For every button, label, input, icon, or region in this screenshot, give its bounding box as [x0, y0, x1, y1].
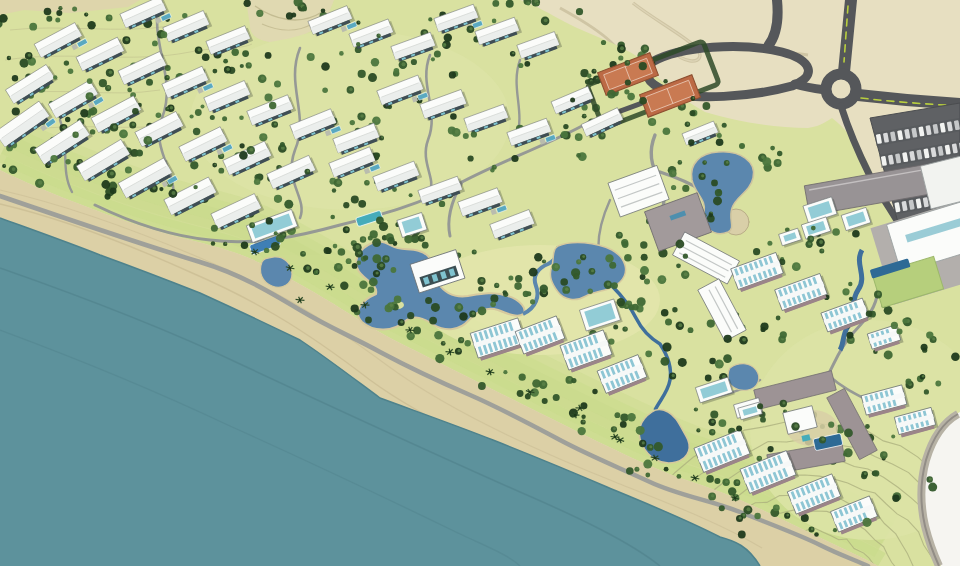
- tree: [529, 268, 538, 277]
- tree: [891, 322, 898, 329]
- tree: [357, 260, 362, 265]
- tree: [190, 161, 198, 169]
- tree: [738, 531, 746, 539]
- tree: [434, 50, 441, 57]
- tree: [55, 18, 60, 23]
- tree: [639, 97, 647, 105]
- tree: [865, 424, 870, 429]
- tree-crown: [409, 334, 413, 338]
- tree-crown: [808, 242, 811, 245]
- tree-crown: [147, 138, 151, 142]
- tree: [232, 49, 239, 56]
- tree: [884, 350, 893, 359]
- tree: [365, 317, 372, 324]
- tree: [624, 89, 629, 94]
- tree-crown: [225, 242, 227, 244]
- tree-crown: [786, 514, 789, 517]
- tree-crown: [584, 115, 586, 117]
- tree: [352, 263, 358, 269]
- tree-crown: [4, 165, 6, 167]
- tree: [627, 413, 635, 421]
- tree: [210, 115, 215, 120]
- tree: [849, 297, 853, 301]
- tree-crown: [542, 382, 546, 386]
- tree-crown: [747, 507, 751, 511]
- tree: [338, 248, 346, 256]
- tree-crown: [620, 46, 624, 50]
- tree: [601, 40, 606, 45]
- tree: [561, 131, 568, 138]
- tree: [369, 278, 378, 287]
- tree: [770, 146, 775, 151]
- tree: [924, 389, 929, 394]
- tree-crown: [607, 282, 611, 286]
- tree-crown: [696, 408, 698, 410]
- tree: [465, 340, 471, 346]
- tree-crown: [679, 323, 683, 327]
- tree: [444, 34, 452, 42]
- tree: [576, 8, 583, 15]
- tree-crown: [79, 160, 82, 163]
- tree: [654, 442, 663, 451]
- tree: [322, 87, 328, 93]
- tree: [195, 109, 202, 116]
- tree-crown: [62, 126, 66, 130]
- tree: [617, 298, 625, 306]
- tree-crown: [362, 237, 365, 240]
- tree: [72, 6, 77, 11]
- tree-crown: [108, 16, 111, 19]
- tree: [709, 213, 713, 217]
- tree: [409, 193, 413, 197]
- tree: [625, 79, 631, 85]
- tree: [68, 68, 74, 74]
- tree-crown: [345, 228, 348, 231]
- tree-crown: [358, 21, 360, 23]
- tree: [490, 295, 498, 303]
- tree-crown: [795, 264, 799, 268]
- tree-crown: [704, 161, 706, 163]
- tree: [492, 19, 497, 24]
- tree: [866, 311, 873, 318]
- tree: [519, 374, 526, 381]
- tree: [146, 79, 153, 86]
- tree-crown: [107, 86, 110, 89]
- tree: [321, 62, 330, 71]
- tree-crown: [88, 94, 92, 98]
- tree-crown: [444, 44, 446, 46]
- tree: [450, 113, 457, 120]
- tree-crown: [132, 93, 135, 96]
- tree: [581, 415, 585, 419]
- tree: [613, 325, 618, 330]
- tree-crown: [810, 237, 813, 240]
- tree-crown: [719, 134, 721, 136]
- tree: [640, 266, 649, 275]
- tree-crown: [360, 114, 364, 118]
- tree-crown: [335, 245, 337, 247]
- tree-crown: [167, 107, 169, 109]
- tree: [862, 518, 871, 527]
- tree-crown: [277, 82, 280, 85]
- tree-crown: [590, 290, 592, 292]
- tree: [683, 254, 688, 259]
- tree: [434, 331, 443, 340]
- tree: [921, 344, 928, 351]
- tree-crown: [127, 168, 130, 171]
- tree: [29, 23, 37, 31]
- tree-crown: [794, 424, 798, 428]
- tree: [211, 241, 215, 245]
- tree: [637, 297, 646, 306]
- tree: [239, 151, 248, 160]
- resort-masterplan-rendering: [0, 0, 960, 566]
- tree: [645, 350, 652, 357]
- tree: [530, 299, 535, 304]
- tree: [471, 131, 477, 137]
- tree: [563, 124, 568, 129]
- tree: [358, 70, 366, 78]
- tree: [753, 248, 760, 255]
- tree: [662, 343, 671, 352]
- tree: [722, 123, 727, 128]
- tree: [431, 303, 440, 312]
- tree-crown: [782, 401, 785, 404]
- tree: [422, 242, 429, 249]
- tree-crown: [565, 288, 569, 292]
- tree: [190, 114, 194, 118]
- tree: [332, 188, 336, 192]
- tree-crown: [618, 233, 621, 236]
- tree: [661, 357, 670, 366]
- tree: [663, 79, 667, 83]
- tree: [202, 54, 210, 62]
- tree: [136, 150, 143, 157]
- tree: [351, 304, 359, 312]
- tree: [703, 102, 711, 110]
- tree: [213, 69, 218, 74]
- tree-crown: [125, 38, 129, 42]
- tree: [425, 297, 432, 304]
- tree-crown: [883, 453, 886, 456]
- tree: [222, 116, 227, 121]
- tree-crown: [711, 430, 714, 433]
- tree-crown: [38, 181, 42, 185]
- tree: [53, 75, 57, 79]
- tree: [761, 327, 766, 332]
- tree-crown: [864, 472, 867, 475]
- tree-crown: [594, 70, 596, 72]
- tree: [394, 296, 402, 304]
- tree-crown: [306, 266, 310, 270]
- tree: [688, 139, 694, 145]
- tree: [201, 105, 205, 109]
- tree-crown: [472, 312, 475, 315]
- tree-crown: [480, 279, 484, 283]
- tree: [368, 286, 375, 293]
- tree-crown: [375, 118, 379, 122]
- tree-crown: [512, 52, 514, 54]
- tree-crown: [739, 516, 742, 519]
- tree: [65, 117, 70, 122]
- tree: [351, 195, 359, 203]
- tree-crown: [742, 338, 746, 342]
- tree: [428, 17, 432, 21]
- tree-crown: [310, 55, 314, 59]
- tree-crown: [227, 68, 230, 71]
- tree-crown: [349, 88, 352, 91]
- tree: [707, 320, 715, 328]
- tree: [407, 312, 414, 319]
- tree-crown: [929, 477, 932, 480]
- tree-crown: [337, 180, 341, 184]
- tree: [372, 254, 381, 263]
- tree-crown: [248, 63, 251, 66]
- tree-crown: [537, 3, 539, 5]
- tree: [161, 31, 168, 38]
- tree: [723, 354, 732, 363]
- tree: [356, 42, 360, 46]
- roundabout-island: [833, 81, 849, 97]
- tree: [56, 10, 62, 16]
- tree: [641, 254, 648, 261]
- tree: [99, 79, 107, 87]
- tree: [728, 487, 736, 495]
- tree-crown: [684, 272, 688, 276]
- tree-crown: [613, 427, 616, 430]
- tree: [639, 62, 647, 70]
- tree-crown: [307, 170, 310, 173]
- tree: [768, 446, 774, 452]
- tree-crown: [578, 135, 582, 139]
- tree: [832, 228, 840, 236]
- tree-crown: [661, 277, 665, 281]
- tree-crown: [167, 76, 169, 78]
- tree: [503, 290, 508, 295]
- tree: [240, 64, 244, 68]
- tree-crown: [651, 120, 655, 124]
- tree-crown: [12, 167, 16, 171]
- tree: [429, 317, 437, 325]
- tree-crown: [544, 18, 548, 22]
- tree-crown: [922, 375, 925, 378]
- tree: [388, 237, 395, 244]
- tree-crown: [172, 191, 176, 195]
- tree-crown: [469, 27, 472, 30]
- tree-crown: [528, 2, 530, 4]
- tree-crown: [122, 131, 126, 135]
- tree: [359, 281, 367, 289]
- tree: [624, 254, 632, 262]
- tree: [627, 93, 635, 101]
- tree: [719, 419, 727, 427]
- tree-crown: [214, 163, 216, 165]
- tree: [65, 159, 70, 164]
- tree: [620, 421, 627, 428]
- tree-crown: [170, 106, 173, 109]
- tree-crown: [220, 154, 223, 157]
- tree: [286, 12, 293, 19]
- tree: [811, 226, 816, 231]
- tree-crown: [845, 290, 848, 293]
- tree-crown: [568, 378, 571, 381]
- tree: [127, 88, 132, 93]
- tree: [661, 309, 669, 317]
- tree: [848, 282, 852, 286]
- tree: [44, 8, 52, 16]
- tree: [211, 225, 218, 232]
- tree: [271, 242, 280, 251]
- tree: [852, 230, 860, 238]
- tree-crown: [776, 161, 780, 165]
- tree: [592, 389, 597, 394]
- tree: [218, 168, 224, 174]
- tree-crown: [496, 284, 498, 286]
- tree: [663, 128, 671, 136]
- tree: [358, 200, 366, 208]
- tree: [492, 0, 499, 7]
- tree-crown: [649, 445, 652, 448]
- tree-crown: [582, 255, 585, 258]
- tree-crown: [672, 374, 675, 377]
- tree: [777, 151, 782, 156]
- tree: [340, 282, 348, 290]
- tree-crown: [132, 123, 135, 126]
- tree: [534, 253, 542, 261]
- tree: [242, 50, 249, 57]
- tree-crown: [256, 180, 259, 183]
- tree: [264, 248, 269, 253]
- tree: [284, 200, 293, 209]
- tree: [892, 495, 899, 502]
- tree: [814, 532, 819, 537]
- tree: [780, 331, 787, 338]
- tree: [506, 0, 514, 8]
- tree: [645, 473, 650, 478]
- tree-crown: [251, 223, 254, 226]
- tree-crown: [158, 113, 161, 116]
- small-pond: [728, 364, 759, 391]
- tree: [906, 378, 912, 384]
- tree-crown: [110, 172, 114, 176]
- tree: [371, 58, 379, 66]
- tree: [636, 426, 645, 435]
- tree: [193, 128, 200, 135]
- tree: [620, 413, 628, 421]
- tree: [274, 195, 282, 203]
- tree: [560, 278, 568, 286]
- tree: [110, 188, 117, 195]
- tree-crown: [250, 148, 254, 152]
- tree: [159, 187, 163, 191]
- tree: [626, 467, 634, 475]
- tree-crown: [718, 362, 722, 366]
- tree-crown: [672, 171, 675, 174]
- tree: [12, 75, 18, 81]
- tree-crown: [9, 56, 11, 58]
- tree-crown: [494, 166, 496, 168]
- tree: [132, 108, 139, 115]
- tree: [478, 307, 487, 316]
- tree-crown: [711, 494, 714, 497]
- tree: [20, 59, 29, 68]
- tree: [719, 505, 725, 511]
- tree-crown: [932, 337, 935, 340]
- tree: [540, 285, 548, 293]
- tree: [265, 52, 272, 59]
- tree: [714, 478, 720, 484]
- tree-crown: [644, 46, 648, 50]
- tree-crown: [75, 133, 78, 136]
- tree: [524, 61, 530, 67]
- tree: [239, 115, 244, 120]
- tree-crown: [642, 441, 645, 444]
- tree-crown: [261, 76, 265, 80]
- tree: [739, 143, 745, 149]
- tree: [847, 332, 854, 339]
- tree: [715, 189, 722, 196]
- tree-crown: [819, 240, 823, 244]
- tree: [640, 241, 647, 248]
- tree: [672, 307, 677, 312]
- tree: [553, 394, 560, 401]
- tree: [615, 412, 621, 418]
- tree-crown: [636, 468, 638, 470]
- tree: [525, 394, 531, 400]
- tree: [193, 185, 197, 189]
- tree: [676, 240, 685, 249]
- tree: [459, 312, 468, 321]
- tree-crown: [457, 349, 460, 352]
- tree-crown: [785, 410, 787, 412]
- tree: [87, 78, 93, 84]
- tree-crown: [698, 429, 700, 431]
- tree-crown: [53, 156, 56, 159]
- tree: [152, 41, 158, 47]
- tree: [515, 275, 522, 282]
- tree: [576, 153, 581, 158]
- tree: [468, 155, 474, 161]
- tree: [241, 242, 248, 249]
- tree-crown: [736, 481, 739, 484]
- tree: [80, 109, 88, 117]
- tree-crown: [302, 252, 305, 255]
- tree: [439, 201, 445, 207]
- tree: [644, 279, 650, 285]
- tree: [478, 286, 483, 291]
- tree: [570, 98, 575, 103]
- tree-crown: [316, 271, 318, 273]
- tree-crown: [402, 62, 406, 66]
- tree: [716, 138, 724, 146]
- tree: [514, 282, 522, 290]
- tree: [368, 73, 377, 82]
- tree: [605, 254, 613, 262]
- tree-crown: [113, 125, 117, 129]
- tree: [269, 102, 276, 109]
- tree-crown: [443, 342, 445, 344]
- tree: [266, 217, 273, 224]
- tree-crown: [493, 302, 495, 304]
- tree: [690, 110, 696, 116]
- tree-crown: [28, 53, 31, 56]
- tree: [435, 354, 444, 363]
- tree-crown: [474, 250, 476, 252]
- tree-crown: [366, 181, 369, 184]
- tree: [622, 241, 629, 248]
- tree: [873, 470, 879, 476]
- tree: [363, 255, 368, 260]
